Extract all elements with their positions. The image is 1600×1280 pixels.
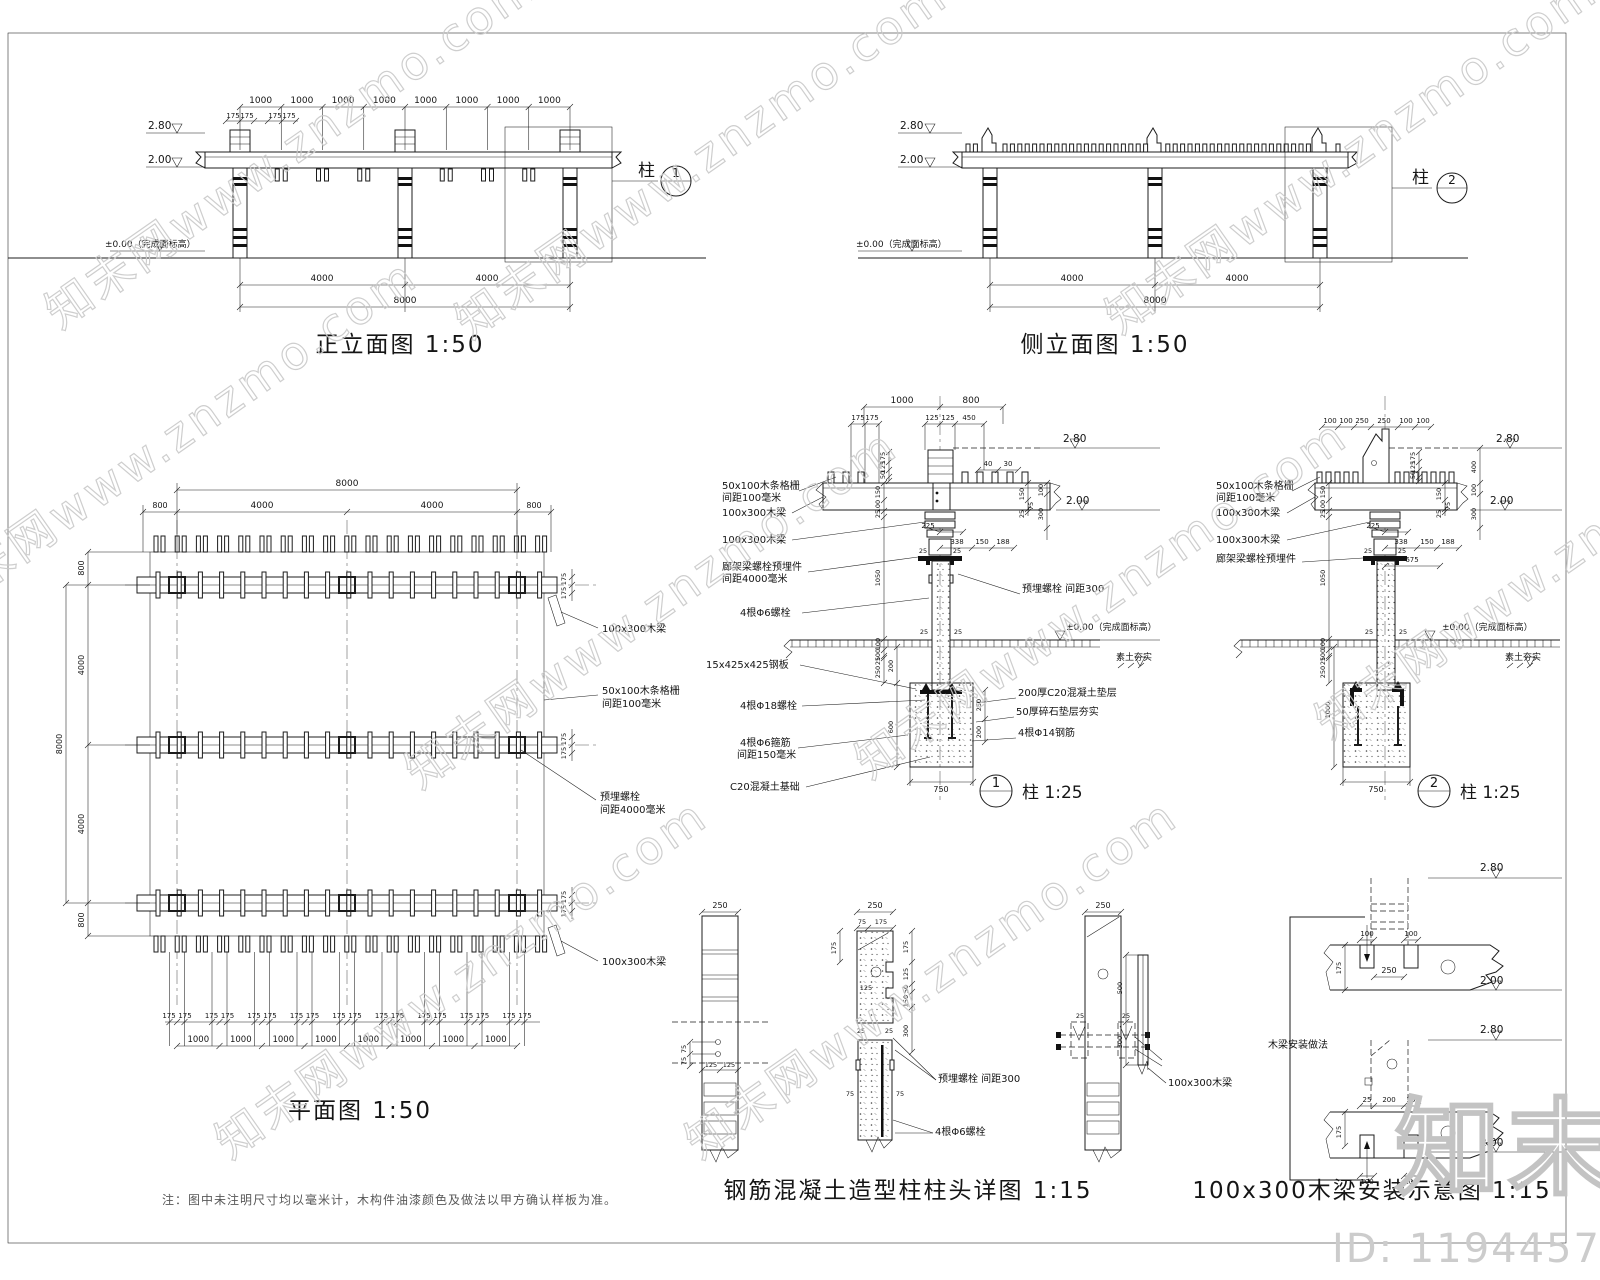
d2-soil-label: 素土夯实 bbox=[1505, 651, 1541, 663]
plan-dim-left: 800 bbox=[77, 912, 86, 927]
cross-tick bbox=[241, 890, 245, 916]
d1-shaft bbox=[932, 561, 950, 690]
edge-tick bbox=[408, 936, 412, 952]
rafter-tick bbox=[1114, 144, 1118, 152]
d1-dim-188: 188 bbox=[996, 538, 1009, 546]
slat bbox=[1431, 472, 1436, 483]
bi-sd-300: 300 bbox=[1116, 1036, 1124, 1048]
plan-bot-175R-2: 175 bbox=[263, 1012, 276, 1020]
rafter-tick bbox=[1225, 144, 1229, 152]
column-band bbox=[1148, 183, 1162, 186]
slat bbox=[1422, 472, 1427, 483]
d1-rv-25: 25 bbox=[1018, 510, 1026, 518]
edge-tick bbox=[161, 936, 165, 952]
d1-dim-450: 450 bbox=[962, 414, 975, 422]
column-band bbox=[983, 177, 997, 180]
ch-a-125: 125 bbox=[705, 1061, 717, 1069]
d1-dim-125: 125 bbox=[925, 414, 938, 422]
cross-tick bbox=[156, 732, 160, 758]
column-head-details: 250 75 75 125 125 250 75 175 125 175 175… bbox=[672, 901, 1162, 1204]
d2-rv-100: 100 bbox=[1470, 484, 1478, 496]
edge-tick bbox=[331, 536, 335, 552]
rafter-tick bbox=[1047, 144, 1051, 152]
edge-tick bbox=[182, 536, 186, 552]
rafter-tick bbox=[1033, 144, 1037, 152]
rafter-tick bbox=[1247, 144, 1251, 152]
ch-label-anchor: 4根Φ6螺栓 bbox=[935, 1125, 986, 1138]
cross-tick bbox=[156, 890, 160, 916]
column-band bbox=[1313, 244, 1327, 247]
cross-tick bbox=[495, 572, 499, 598]
rafter-tick bbox=[1188, 144, 1192, 152]
rafter-tick bbox=[1255, 144, 1259, 152]
rafter-end bbox=[440, 169, 444, 181]
side-title: 侧立面图 1:50 bbox=[1021, 332, 1190, 358]
d1-label: C20混凝土基础 bbox=[730, 780, 800, 793]
column-band bbox=[398, 244, 412, 247]
bi-label-note: 木梁安装做法 bbox=[1268, 1038, 1328, 1051]
cross-tick bbox=[516, 732, 520, 758]
d1-f-750: 750 bbox=[933, 785, 948, 794]
cross-tick bbox=[432, 572, 436, 598]
edge-tick bbox=[543, 536, 547, 552]
edge-tick bbox=[387, 936, 391, 952]
edge-tick bbox=[472, 536, 476, 552]
edge-tick bbox=[154, 936, 158, 952]
d1-dim-40: 40 bbox=[984, 460, 993, 468]
rafter-tick bbox=[1262, 144, 1266, 152]
rafter-tick bbox=[1070, 144, 1074, 152]
plan-note: 注：图中未注明尺寸均以毫米计，木构件油漆颜色及做法以甲方确认样板为准。 bbox=[162, 1192, 617, 1207]
cross-tick bbox=[177, 732, 181, 758]
d2-n25: 25 bbox=[1364, 547, 1372, 555]
edge-tick bbox=[415, 536, 419, 552]
d1-f-200b: 200 bbox=[975, 726, 983, 738]
bi-label-beam: 100x300木梁 bbox=[1168, 1076, 1232, 1089]
d2-rv-25: 25 bbox=[1435, 510, 1443, 518]
rafter-tick bbox=[1203, 144, 1207, 152]
edge-tick bbox=[218, 536, 222, 552]
d2-top-dim: 100 bbox=[1339, 417, 1352, 425]
cross-tick bbox=[262, 732, 266, 758]
d1-base-plate bbox=[918, 556, 962, 561]
plan-bot-175R-7: 175 bbox=[476, 1012, 489, 1020]
d1-lc: 1050 bbox=[874, 570, 882, 587]
d2-n25: 25 bbox=[1365, 628, 1373, 636]
rafter-tick bbox=[1055, 144, 1059, 152]
front-beam-end-right bbox=[612, 152, 621, 168]
watermark-tile: 知末网www.znzmo.com bbox=[395, 418, 907, 799]
edge-tick bbox=[288, 936, 292, 952]
edge-tick bbox=[182, 936, 186, 952]
cad-sheet: 10001000100010001000100010001000 175 175… bbox=[0, 0, 1600, 1280]
cross-tick bbox=[347, 572, 351, 598]
cross-tick bbox=[410, 890, 414, 916]
plan-dim-top: 800 bbox=[526, 501, 541, 510]
rafter-end bbox=[531, 169, 535, 181]
plan-bot-175L-2: 175 bbox=[247, 1012, 260, 1020]
plan-bot-175L: 175175175175175175175175175 bbox=[162, 1012, 515, 1020]
cross-tick bbox=[220, 732, 224, 758]
edge-tick bbox=[196, 536, 200, 552]
cross-tick bbox=[241, 572, 245, 598]
ch-c-250: 250 bbox=[1095, 901, 1110, 910]
edge-tick bbox=[267, 536, 271, 552]
bi-l-25: 25 bbox=[1363, 1096, 1372, 1104]
edge-tick bbox=[345, 936, 349, 952]
d2-rv-300: 300 bbox=[1470, 508, 1478, 520]
column-band bbox=[1148, 244, 1162, 247]
rafter-tick bbox=[1232, 144, 1236, 152]
rafter-tick bbox=[973, 144, 977, 152]
ch-title: 钢筋混凝土造型柱柱头详图 1:15 bbox=[724, 1178, 1093, 1204]
cross-tick bbox=[347, 732, 351, 758]
cross-tick bbox=[368, 572, 372, 598]
cross-tick bbox=[432, 890, 436, 916]
ch-a-75: 75 bbox=[680, 1045, 688, 1053]
rafter-tick bbox=[1121, 144, 1125, 152]
cross-tick bbox=[389, 732, 393, 758]
edge-tick bbox=[430, 936, 434, 952]
rafter-tick bbox=[1010, 144, 1014, 152]
cross-tick bbox=[347, 890, 351, 916]
edge-tick bbox=[161, 536, 165, 552]
ch-b-250: 250 bbox=[867, 901, 882, 910]
edge-tick bbox=[225, 936, 229, 952]
cross-tick bbox=[368, 732, 372, 758]
edge-tick bbox=[302, 536, 306, 552]
bi-u-175: 175 bbox=[1335, 962, 1343, 974]
d2-lc: 25 bbox=[1319, 510, 1327, 518]
cross-tick bbox=[326, 572, 330, 598]
edge-tick bbox=[352, 536, 356, 552]
rafter-tick bbox=[1084, 144, 1088, 152]
column-band bbox=[563, 183, 577, 186]
rafter-tick bbox=[1277, 144, 1281, 152]
plan-bot-1000-7: 1000 bbox=[485, 1035, 507, 1045]
rafter-tick bbox=[1240, 144, 1244, 152]
rafter-tick bbox=[1173, 144, 1177, 152]
ch-b-chain: 175 bbox=[902, 941, 910, 953]
edge-tick bbox=[408, 536, 412, 552]
bi-l-175: 175 bbox=[1335, 1126, 1343, 1138]
cross-tick bbox=[198, 890, 202, 916]
d1-callout-label: 柱 1:25 bbox=[1022, 783, 1083, 803]
column-band bbox=[1313, 228, 1327, 231]
plan-dim-top: 4000 bbox=[251, 501, 274, 511]
edge-tick bbox=[415, 936, 419, 952]
rafter-end bbox=[358, 169, 362, 181]
cross-tick bbox=[495, 890, 499, 916]
edge-tick bbox=[536, 536, 540, 552]
rafter-tick bbox=[1218, 144, 1222, 152]
plan-row-dim-175: 175 bbox=[560, 733, 568, 745]
ch-c-25: 25 bbox=[1076, 1012, 1084, 1020]
edge-tick bbox=[373, 936, 377, 952]
column-cap bbox=[982, 128, 996, 152]
column-band bbox=[233, 236, 247, 239]
plan-bot-175L-1: 175 bbox=[205, 1012, 218, 1020]
d1-lc: 250 bbox=[874, 666, 882, 678]
rafter-end bbox=[325, 169, 329, 181]
d2-base-plate bbox=[1363, 556, 1407, 561]
d1-soil-label: 素土夯实 bbox=[1116, 651, 1152, 663]
edge-tick bbox=[154, 536, 158, 552]
rafter-end bbox=[366, 169, 370, 181]
d1-dim-175: 175 bbox=[851, 414, 864, 422]
d1-rv-100: 100 bbox=[1037, 484, 1045, 496]
rafter-end bbox=[523, 169, 527, 181]
d1-dim-30: 30 bbox=[1004, 460, 1013, 468]
cross-tick bbox=[326, 890, 330, 916]
drawing-canvas: 10001000100010001000100010001000 175 175… bbox=[0, 0, 1600, 1280]
edge-tick bbox=[260, 936, 264, 952]
plan-view: 8000 800 4000 4000 800 800 4000 4000 800… bbox=[55, 479, 680, 1207]
plan-bot-175R-0: 175 bbox=[178, 1012, 191, 1020]
watermark-tile: 知末网www.znzmo.com bbox=[445, 0, 957, 349]
cross-tick bbox=[453, 890, 457, 916]
cross-tick bbox=[538, 572, 542, 598]
ch-a-250: 250 bbox=[712, 901, 727, 910]
cross-tick bbox=[283, 890, 287, 916]
rafter-tick bbox=[1269, 144, 1273, 152]
column-band bbox=[983, 183, 997, 186]
d1-dim-150: 150 bbox=[975, 538, 988, 546]
slat bbox=[1395, 472, 1400, 483]
d2-rv-400: 400 bbox=[1470, 461, 1478, 473]
cross-tick bbox=[262, 890, 266, 916]
cross-tick bbox=[389, 572, 393, 598]
edge-tick bbox=[493, 536, 497, 552]
edge-tick bbox=[246, 936, 250, 952]
plan-label-bolt-1: 预埋螺栓 bbox=[600, 790, 640, 803]
edge-tick bbox=[430, 536, 434, 552]
column-band bbox=[983, 244, 997, 247]
d1-rlabel: 4根Φ14钢筋 bbox=[1018, 726, 1075, 739]
edge-tick bbox=[196, 936, 200, 952]
edge-tick bbox=[387, 536, 391, 552]
bi-l-280: 2.80 bbox=[1480, 1024, 1503, 1036]
d2-dim-675: 675 bbox=[1405, 556, 1418, 564]
d2-cap-chain: 50 bbox=[1409, 471, 1417, 479]
d2-dim-150: 150 bbox=[1420, 538, 1433, 546]
edge-tick bbox=[309, 536, 313, 552]
column-band bbox=[1148, 228, 1162, 231]
cross-tick bbox=[368, 890, 372, 916]
edge-tick bbox=[352, 936, 356, 952]
edge-tick bbox=[366, 936, 370, 952]
d1-lc: 25 bbox=[874, 657, 882, 665]
column-band bbox=[233, 228, 247, 231]
ch-b-s75: 75 bbox=[846, 1090, 854, 1098]
cross-tick bbox=[453, 572, 457, 598]
edge-tick bbox=[281, 536, 285, 552]
ch-a-75: 75 bbox=[680, 1057, 688, 1065]
column-band bbox=[1148, 177, 1162, 180]
edge-tick bbox=[302, 936, 306, 952]
edge-tick bbox=[479, 536, 483, 552]
cross-tick bbox=[156, 572, 160, 598]
ch-col-c: 250 25 25 bbox=[1056, 901, 1162, 1162]
cross-tick bbox=[474, 890, 478, 916]
rafter-tick bbox=[1077, 144, 1081, 152]
plan-dim-8000-top: 8000 bbox=[336, 479, 359, 489]
d1-label: 4根Φ6箍筋 bbox=[740, 736, 791, 749]
column-band bbox=[1148, 236, 1162, 239]
edge-tick bbox=[288, 536, 292, 552]
plan-bot-1000-1: 1000 bbox=[230, 1035, 252, 1045]
watermark-id: ID: 1194457426 bbox=[1332, 1226, 1600, 1272]
column-band bbox=[983, 228, 997, 231]
column-band bbox=[398, 183, 412, 186]
slat bbox=[1440, 472, 1445, 483]
slat bbox=[1335, 472, 1340, 483]
level-triangle bbox=[172, 158, 182, 167]
bi-sd-500: 500 bbox=[1116, 982, 1124, 994]
side-callout-number: 2 bbox=[1448, 173, 1456, 187]
plan-dim-8000-left: 8000 bbox=[55, 734, 64, 754]
column-band bbox=[1313, 236, 1327, 239]
d1-dim-800: 800 bbox=[962, 396, 979, 406]
column-band bbox=[398, 236, 412, 239]
d1-label: 15x425x425钢板 bbox=[706, 658, 789, 671]
plan-bot-175L-4: 175 bbox=[332, 1012, 345, 1020]
edge-tick bbox=[324, 936, 328, 952]
d1-dim-338: 338 bbox=[950, 538, 963, 546]
plan-bot-1000-0: 1000 bbox=[187, 1035, 209, 1045]
d1-f-200: 200 bbox=[887, 660, 895, 672]
slat bbox=[1353, 472, 1358, 483]
level-triangle bbox=[172, 124, 182, 133]
edge-tick bbox=[203, 936, 207, 952]
slat bbox=[1449, 472, 1454, 483]
cross-tick bbox=[304, 732, 308, 758]
edge-tick bbox=[500, 536, 504, 552]
rafter-tick bbox=[1040, 144, 1044, 152]
rafter-tick bbox=[966, 144, 970, 152]
watermark-tile: 知末网www.znzmo.com bbox=[675, 788, 1187, 1169]
rafter-end bbox=[482, 169, 486, 181]
watermark-tile: 知末网www.znzmo.com bbox=[1095, 0, 1600, 344]
d1-rlabel: 200厚C20混凝土垫层 bbox=[1018, 686, 1117, 699]
edge-tick bbox=[281, 936, 285, 952]
cross-tick bbox=[283, 732, 287, 758]
d1-callout-number: 1 bbox=[992, 776, 1000, 791]
bi-upper-view: 2.80 100 100 250 175 2.00 bbox=[1324, 862, 1562, 990]
cross-tick bbox=[474, 572, 478, 598]
bi-u-250: 250 bbox=[1381, 966, 1396, 975]
plan-dim-left: 800 bbox=[77, 560, 86, 575]
d2-beam-end bbox=[1457, 483, 1468, 510]
edge-tick bbox=[514, 536, 518, 552]
edge-tick bbox=[451, 536, 455, 552]
side-callout-label: 柱 bbox=[1412, 168, 1429, 188]
edge-tick bbox=[394, 936, 398, 952]
edge-tick bbox=[203, 536, 207, 552]
plan-bot-175R-3: 175 bbox=[306, 1012, 319, 1020]
bi-u-100: 100 bbox=[1360, 930, 1373, 938]
rafter-tick bbox=[1092, 144, 1096, 152]
plan-label-slat-2: 间距100毫米 bbox=[602, 697, 661, 710]
cross-tick bbox=[220, 572, 224, 598]
edge-tick bbox=[218, 936, 222, 952]
rafter-tick bbox=[1107, 144, 1111, 152]
rafter-tick bbox=[1025, 144, 1029, 152]
watermark-layer: 知末网www.znzmo.com 知末网www.znzmo.com 知末网www… bbox=[0, 0, 1600, 1272]
d2-neck bbox=[1370, 512, 1400, 555]
watermark-tile: 知末网www.znzmo.com bbox=[845, 408, 1357, 789]
rafter-end bbox=[448, 169, 452, 181]
plan-bot-175R-8: 175 bbox=[518, 1012, 531, 1020]
rafter-tick bbox=[1181, 144, 1185, 152]
rafter-end bbox=[317, 169, 321, 181]
column-band bbox=[398, 228, 412, 231]
d1-rv-300: 300 bbox=[1037, 508, 1045, 520]
rafter-tick bbox=[1195, 144, 1199, 152]
cross-tick bbox=[220, 890, 224, 916]
rafter-tick bbox=[1099, 144, 1103, 152]
cross-tick bbox=[177, 890, 181, 916]
cross-tick bbox=[283, 572, 287, 598]
rafter-tick bbox=[1299, 144, 1303, 152]
plan-bot-175L-7: 175 bbox=[460, 1012, 473, 1020]
edge-tick bbox=[175, 936, 179, 952]
d2-callout-label: 柱 1:25 bbox=[1460, 783, 1521, 803]
cross-tick bbox=[304, 572, 308, 598]
cross-tick bbox=[198, 732, 202, 758]
ch-a-125: 125 bbox=[723, 1061, 735, 1069]
front-dim-4000: 4000 bbox=[311, 274, 334, 284]
edge-tick bbox=[225, 536, 229, 552]
d2-callout-number: 2 bbox=[1430, 776, 1438, 791]
d1-neck bbox=[925, 512, 955, 555]
d2-lc: 150 bbox=[1319, 486, 1327, 498]
plan-bot-1000-6: 1000 bbox=[442, 1035, 464, 1045]
edge-tick bbox=[267, 936, 271, 952]
cross-tick bbox=[177, 572, 181, 598]
ch-label-bolt: 预埋螺栓 间距300 bbox=[938, 1072, 1020, 1085]
d1-rlabel: 50厚碎石垫层夯实 bbox=[1016, 705, 1099, 718]
front-level-200: 2.00 bbox=[148, 154, 171, 166]
plan-row-dim-175: 175 bbox=[560, 587, 568, 599]
plan-dim-left: 4000 bbox=[77, 814, 86, 834]
rafter-tick bbox=[1003, 144, 1007, 152]
front-dim-1000-row-4: 1000 bbox=[414, 96, 437, 106]
side-dim-4000: 4000 bbox=[1061, 274, 1084, 284]
d2-label: 廊架梁螺栓预埋件 bbox=[1216, 552, 1296, 565]
d1-lc: 150 bbox=[874, 486, 882, 498]
rafter-tick bbox=[1166, 144, 1170, 152]
column-cap bbox=[1147, 128, 1161, 152]
d1-label: 4根Φ6螺栓 bbox=[740, 606, 791, 619]
cross-tick bbox=[304, 890, 308, 916]
edge-tick bbox=[458, 536, 462, 552]
d1-dim-125: 125 bbox=[941, 414, 954, 422]
d2-f-750: 750 bbox=[1368, 785, 1383, 794]
plan-row-dim-175: 175 bbox=[560, 747, 568, 759]
d2-lc: 250 bbox=[1319, 666, 1327, 678]
slat bbox=[1326, 472, 1331, 483]
d2-top-dim: 250 bbox=[1355, 417, 1368, 425]
edge-tick bbox=[437, 536, 441, 552]
level-triangle bbox=[925, 158, 935, 167]
cross-tick bbox=[516, 572, 520, 598]
front-dim-1000-row-7: 1000 bbox=[538, 96, 561, 106]
edge-tick bbox=[239, 936, 243, 952]
column-band bbox=[398, 177, 412, 180]
ch-b-s75: 75 bbox=[896, 1090, 904, 1098]
side-level-000: ±0.00（完成面标高） bbox=[856, 238, 947, 250]
